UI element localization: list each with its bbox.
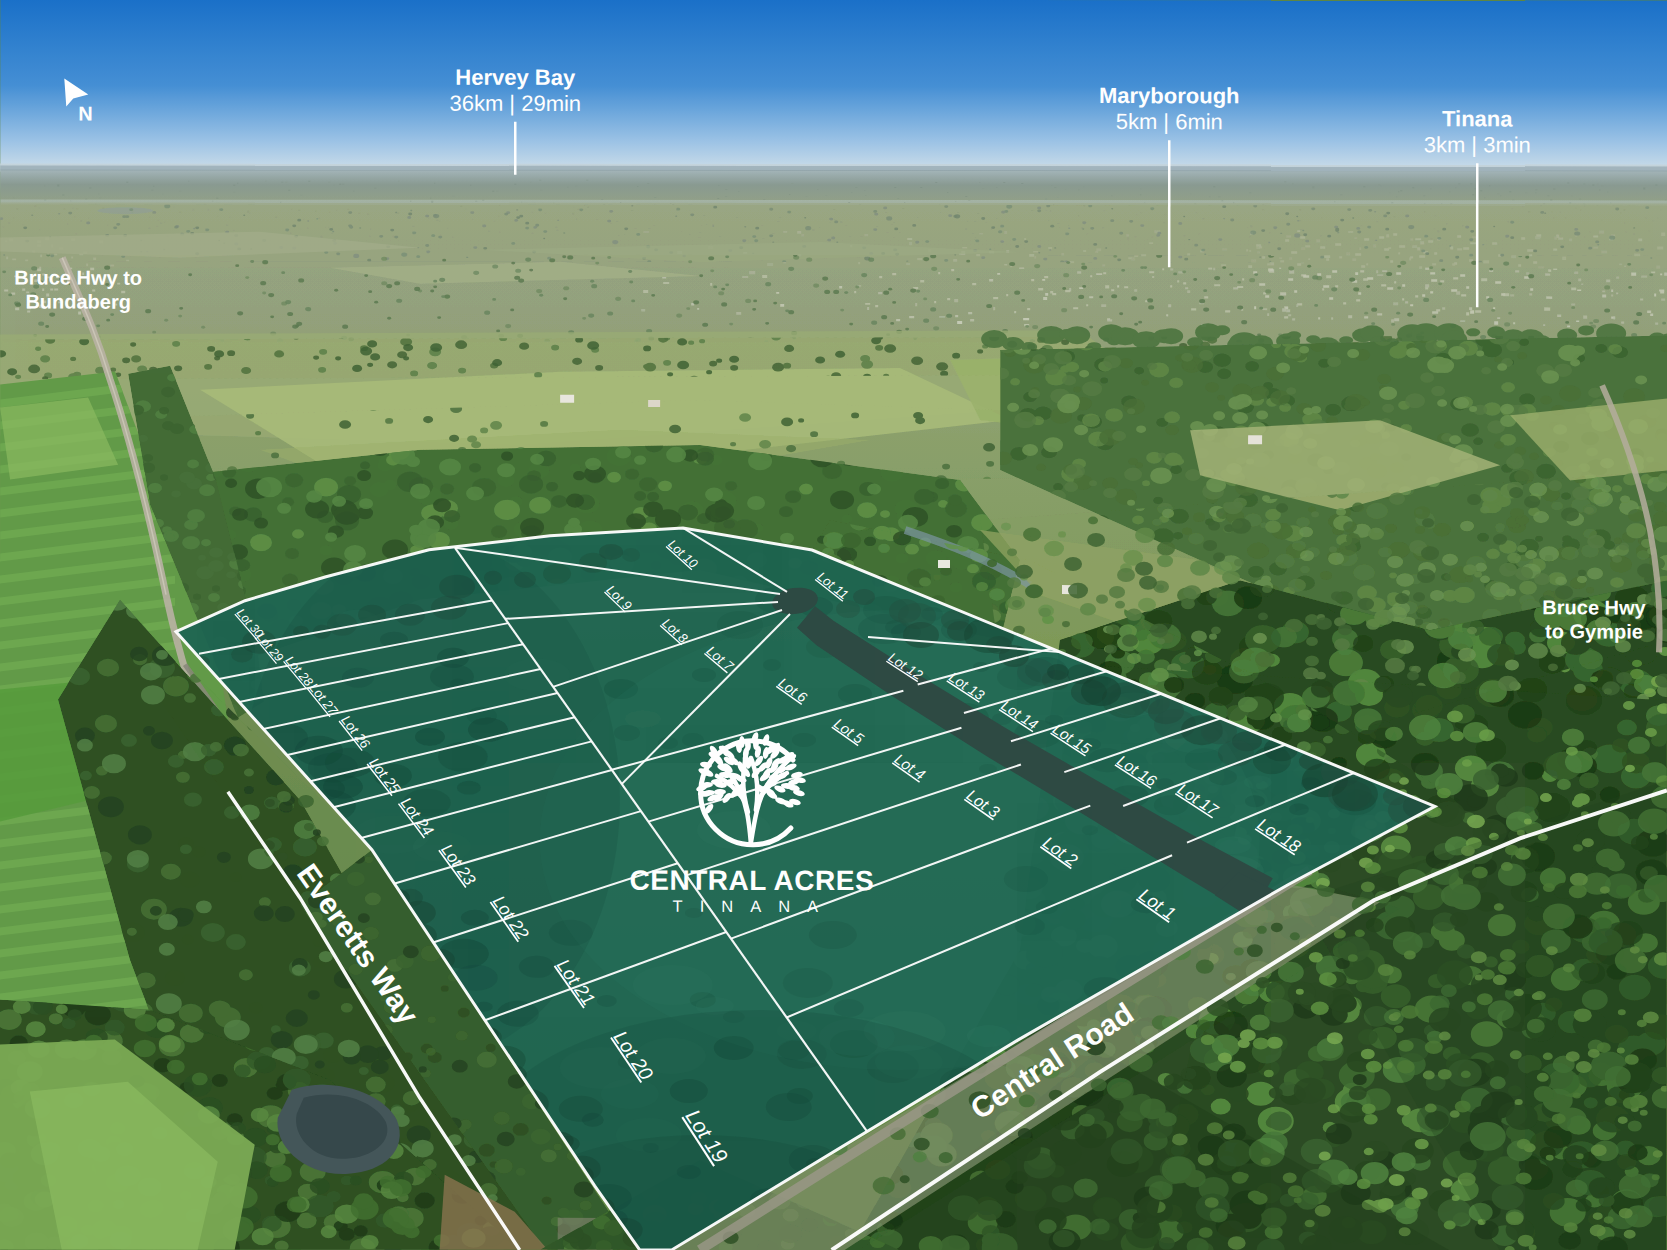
svg-text:to Gympie: to Gympie xyxy=(1545,620,1643,642)
svg-text:Hervey Bay: Hervey Bay xyxy=(455,65,576,90)
svg-text:Maryborough: Maryborough xyxy=(1099,83,1240,108)
svg-text:Bundaberg: Bundaberg xyxy=(25,291,131,313)
svg-text:N: N xyxy=(78,103,92,125)
svg-text:CENTRAL ACRES: CENTRAL ACRES xyxy=(630,865,875,896)
svg-text:Tinana: Tinana xyxy=(1442,106,1513,131)
svg-text:Bruce Hwy: Bruce Hwy xyxy=(1542,596,1646,618)
svg-text:Bruce Hwy to: Bruce Hwy to xyxy=(14,266,142,288)
svg-text:5km | 6min: 5km | 6min xyxy=(1116,109,1223,134)
svg-text:36km | 29min: 36km | 29min xyxy=(449,91,581,116)
svg-text:3km | 3min: 3km | 3min xyxy=(1424,132,1531,157)
svg-text:TINANA: TINANA xyxy=(673,897,836,915)
